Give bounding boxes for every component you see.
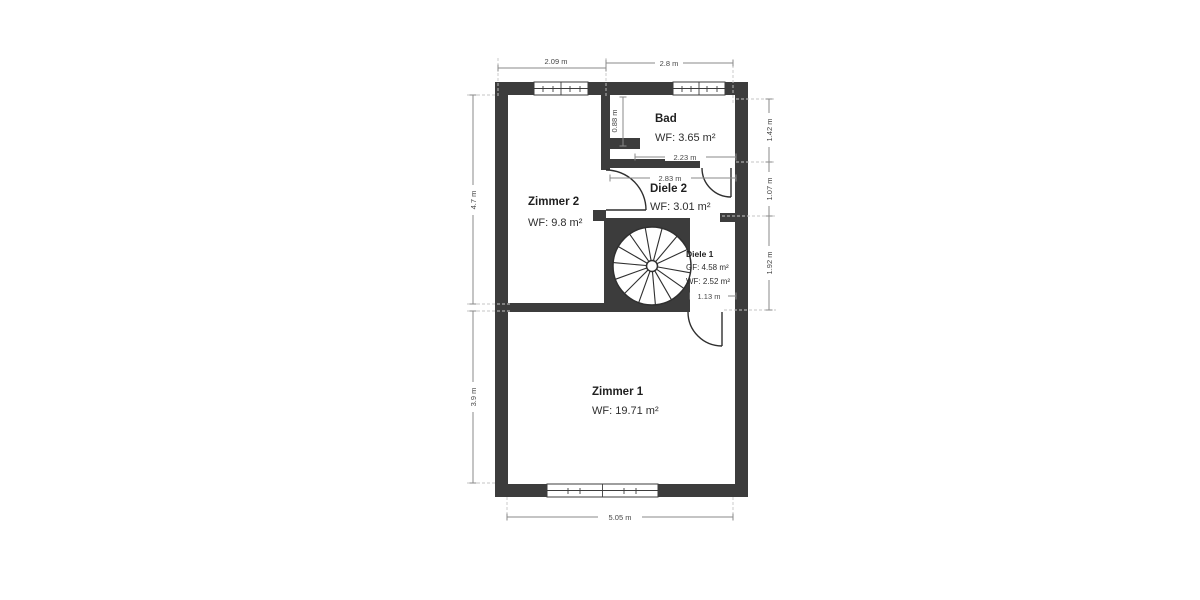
room-area-zimmer2: WF: 9.8 m² <box>528 217 583 229</box>
window-top-right <box>673 82 725 95</box>
spiral-staircase <box>613 227 691 305</box>
room-label-zimmer2: Zimmer 2 <box>528 196 579 208</box>
room-label-diele2: Diele 2 <box>650 183 687 195</box>
dim-left-upper: 4.7 m <box>469 191 478 210</box>
room-area-diele2: WF: 3.01 m² <box>650 201 711 213</box>
room-area-diele1-gf: GF: 4.58 m² <box>686 263 729 272</box>
door-zimmer2-diele2 <box>606 170 646 210</box>
room-area-diele1-wf: WF: 2.52 m² <box>686 277 730 286</box>
floor-plan-svg: 2.09 m 2.8 m 4.7 m 3.9 m 1.42 m 1.07 m 1… <box>0 0 1200 600</box>
room-label-zimmer1: Zimmer 1 <box>592 386 644 398</box>
room-area-zimmer1: WF: 19.71 m² <box>592 405 659 417</box>
door-zimmer1 <box>688 312 722 346</box>
window-top-left <box>534 82 588 95</box>
dim-diele2-width: 2.83 m <box>659 174 682 183</box>
floor-plan-canvas: 2.09 m 2.8 m 4.7 m 3.9 m 1.42 m 1.07 m 1… <box>0 0 1200 600</box>
dim-top-right: 2.8 m <box>660 59 679 68</box>
wall-bad-step <box>601 138 640 149</box>
dim-top-left: 2.09 m <box>545 57 568 66</box>
room-label-bad: Bad <box>655 113 677 125</box>
door-bad <box>702 168 731 197</box>
dim-bottom: 5.05 m <box>609 513 632 522</box>
window-bottom <box>547 484 658 497</box>
dim-right-1: 1.42 m <box>765 119 774 142</box>
room-label-diele1: Diele 1 <box>686 249 714 259</box>
stair-center-post <box>647 261 658 272</box>
wall-stub-right <box>720 213 735 222</box>
dim-left-lower: 3.9 m <box>469 388 478 407</box>
dim-right-2: 1.07 m <box>765 178 774 201</box>
dim-bad-width: 2.23 m <box>674 153 697 162</box>
dim-corridor-width: 1.13 m <box>698 292 721 301</box>
wall-right <box>735 82 748 497</box>
wall-zimmer2-bad <box>601 95 610 170</box>
dim-bad-wall: 0.88 m <box>610 110 619 133</box>
wall-left <box>495 82 508 497</box>
room-area-bad: WF: 3.65 m² <box>655 132 716 144</box>
dim-right-3: 1.92 m <box>765 252 774 275</box>
